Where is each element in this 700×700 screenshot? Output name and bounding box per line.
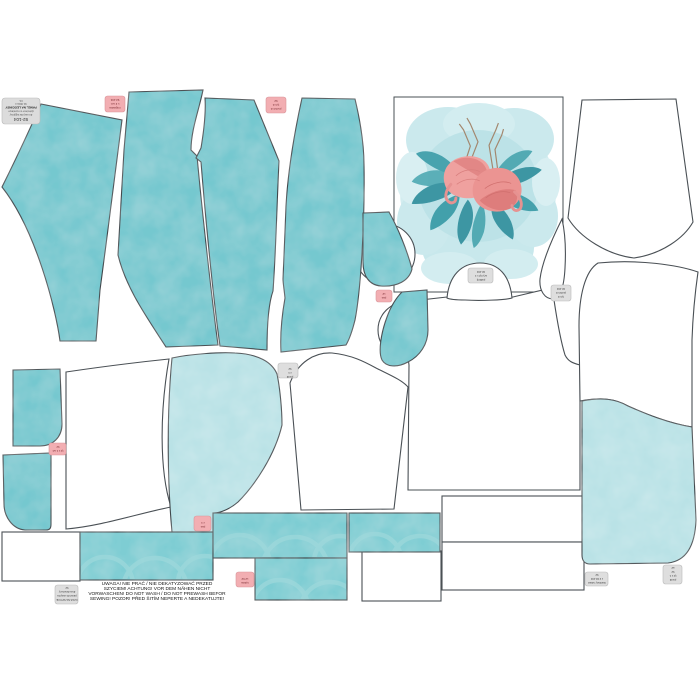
svg-text:przód: przód: [286, 375, 293, 379]
svg-text:FA: FA: [19, 99, 22, 102]
svg-text:SZYCIEM! ACHTUNG! VOR DEM NÄHE: SZYCIEM! ACHTUNG! VOR DEM NÄHEN NICHT: [104, 585, 211, 592]
svg-text:tył x 1: tył x 1: [669, 574, 676, 578]
svg-text:szyi tył x 1: szyi tył x 1: [474, 274, 487, 278]
svg-text:panel do uszycia: panel do uszycia: [57, 594, 77, 598]
svg-text:PANEL NA LEGGINSY: PANEL NA LEGGINSY: [5, 106, 36, 110]
svg-text:92-104: 92-104: [476, 270, 485, 274]
svg-text:tył x1: tył x1: [557, 295, 564, 299]
svg-text:UWAGA! NIE PRAĆ / NIE DEKATYZ: UWAGA! NIE PRAĆ / NIE DEKATYZOWAĆ PRZED: [102, 580, 213, 587]
svg-text:przód x1: przód x1: [555, 291, 566, 295]
svg-text:CZAS NA SZYCIE: CZAS NA SZYCIE: [56, 598, 77, 602]
svg-text:92-104: 92-104: [13, 117, 28, 122]
svg-text:przód: przód: [669, 578, 676, 582]
svg-text:92-104: 92-104: [110, 98, 119, 102]
svg-text:do uszycia legginsy: do uszycia legginsy: [9, 113, 32, 117]
svg-text:tył x 1 szt: tył x 1 szt: [52, 449, 63, 453]
svg-text:x 1: x 1: [288, 371, 292, 375]
svg-text:x2 92: x2 92: [241, 577, 248, 581]
svg-text:dres dzieciecy: dres dzieciecy: [58, 590, 75, 594]
svg-text:mankiety rekaw: mankiety rekaw: [588, 581, 606, 585]
svg-text:92-104: 92-104: [556, 287, 565, 291]
svg-text:x 1: x 1: [201, 521, 205, 525]
svg-text:92: 92: [274, 99, 278, 103]
svg-text:x2: x2: [382, 292, 385, 296]
svg-text:x 2 92-104: x 2 92-104: [590, 577, 603, 581]
svg-text:podkrój: podkrój: [476, 278, 485, 282]
